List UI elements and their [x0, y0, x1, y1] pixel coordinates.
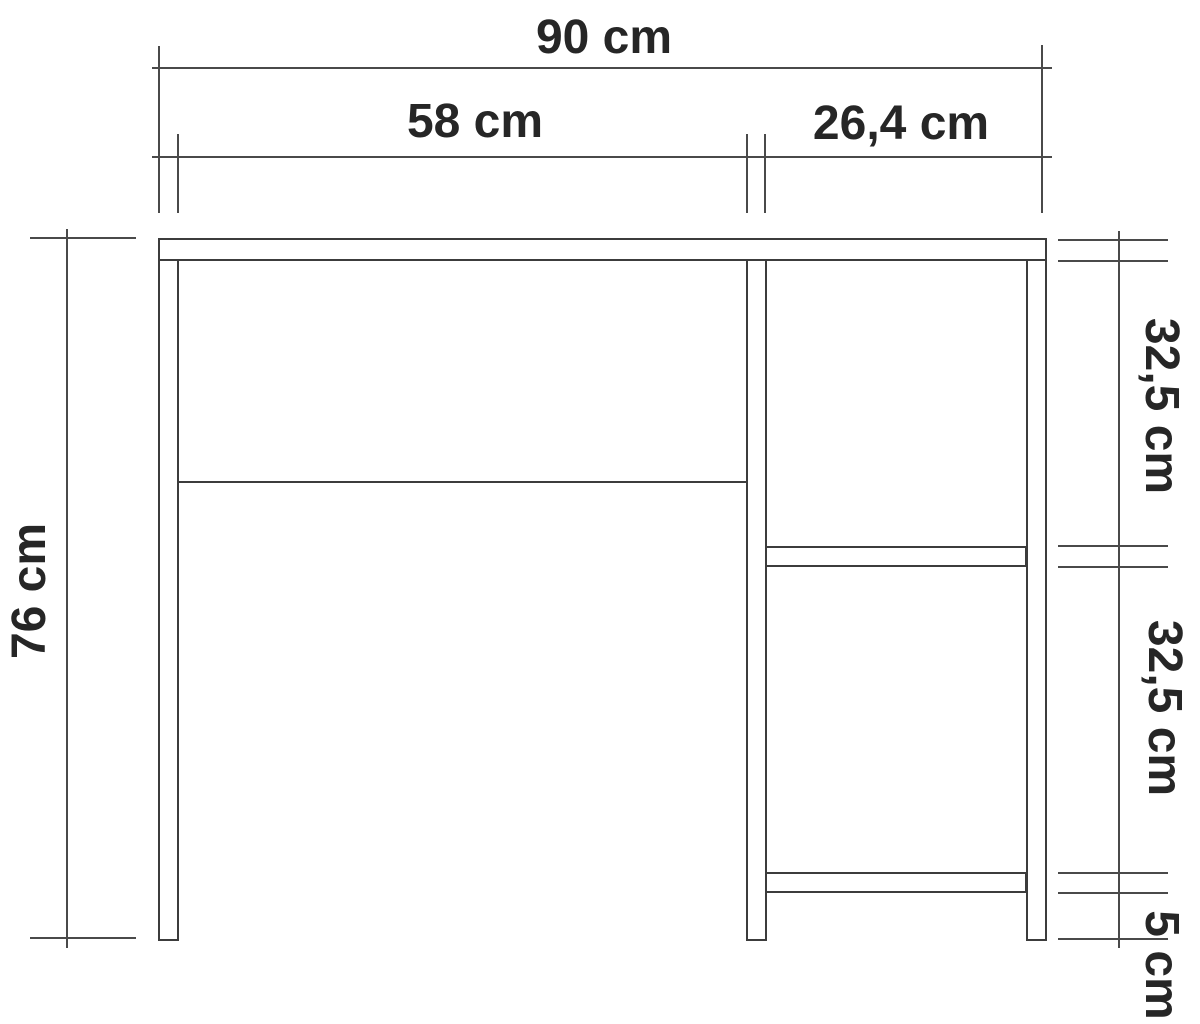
extension-line-divider-right [764, 134, 766, 213]
bottom-shelf [765, 872, 1027, 893]
dim-label-total-height: 76 cm [6, 523, 54, 659]
dim-tick-bottom-shelf-bottom [1058, 892, 1168, 894]
dim-tick-height-top [30, 237, 136, 239]
technical-drawing-canvas: 90 cm 58 cm 26,4 cm 76 cm 32,5 cm 32,5 c… [0, 0, 1200, 1024]
dim-tick-height-bottom [30, 937, 136, 939]
dim-tick-bottom-shelf-top [1058, 872, 1168, 874]
dim-line-sub-widths [152, 156, 1052, 158]
middle-shelf [765, 546, 1027, 567]
dim-tick-middle-shelf-top [1058, 545, 1168, 547]
extension-line-left-inner [177, 134, 179, 213]
dim-label-right-opening: 26,4 cm [813, 100, 989, 148]
left-side-panel [158, 259, 179, 941]
dim-line-total-height [66, 229, 68, 948]
dim-label-left-opening: 58 cm [407, 98, 543, 146]
dim-label-lower-shelf-gap: 32,5 cm [1140, 620, 1188, 796]
center-divider-panel [746, 259, 767, 941]
dim-line-right-column [1118, 231, 1120, 948]
desk-top-panel [158, 238, 1047, 261]
extension-line-divider-left [746, 134, 748, 213]
dim-tick-desktop-bottom [1058, 260, 1168, 262]
dim-line-total-width [152, 67, 1052, 69]
dim-label-upper-shelf-gap: 32,5 cm [1137, 318, 1185, 494]
dim-tick-middle-shelf-bottom [1058, 566, 1168, 568]
extension-line-right-outer [1041, 45, 1043, 213]
dim-tick-desktop-top [1058, 239, 1168, 241]
dim-label-total-width: 90 cm [536, 14, 672, 62]
dim-label-bottom-clearance: 5 cm [1137, 910, 1185, 1019]
right-side-panel [1026, 259, 1047, 941]
extension-line-left-outer [158, 46, 160, 213]
back-panel-edge-line [179, 481, 746, 483]
